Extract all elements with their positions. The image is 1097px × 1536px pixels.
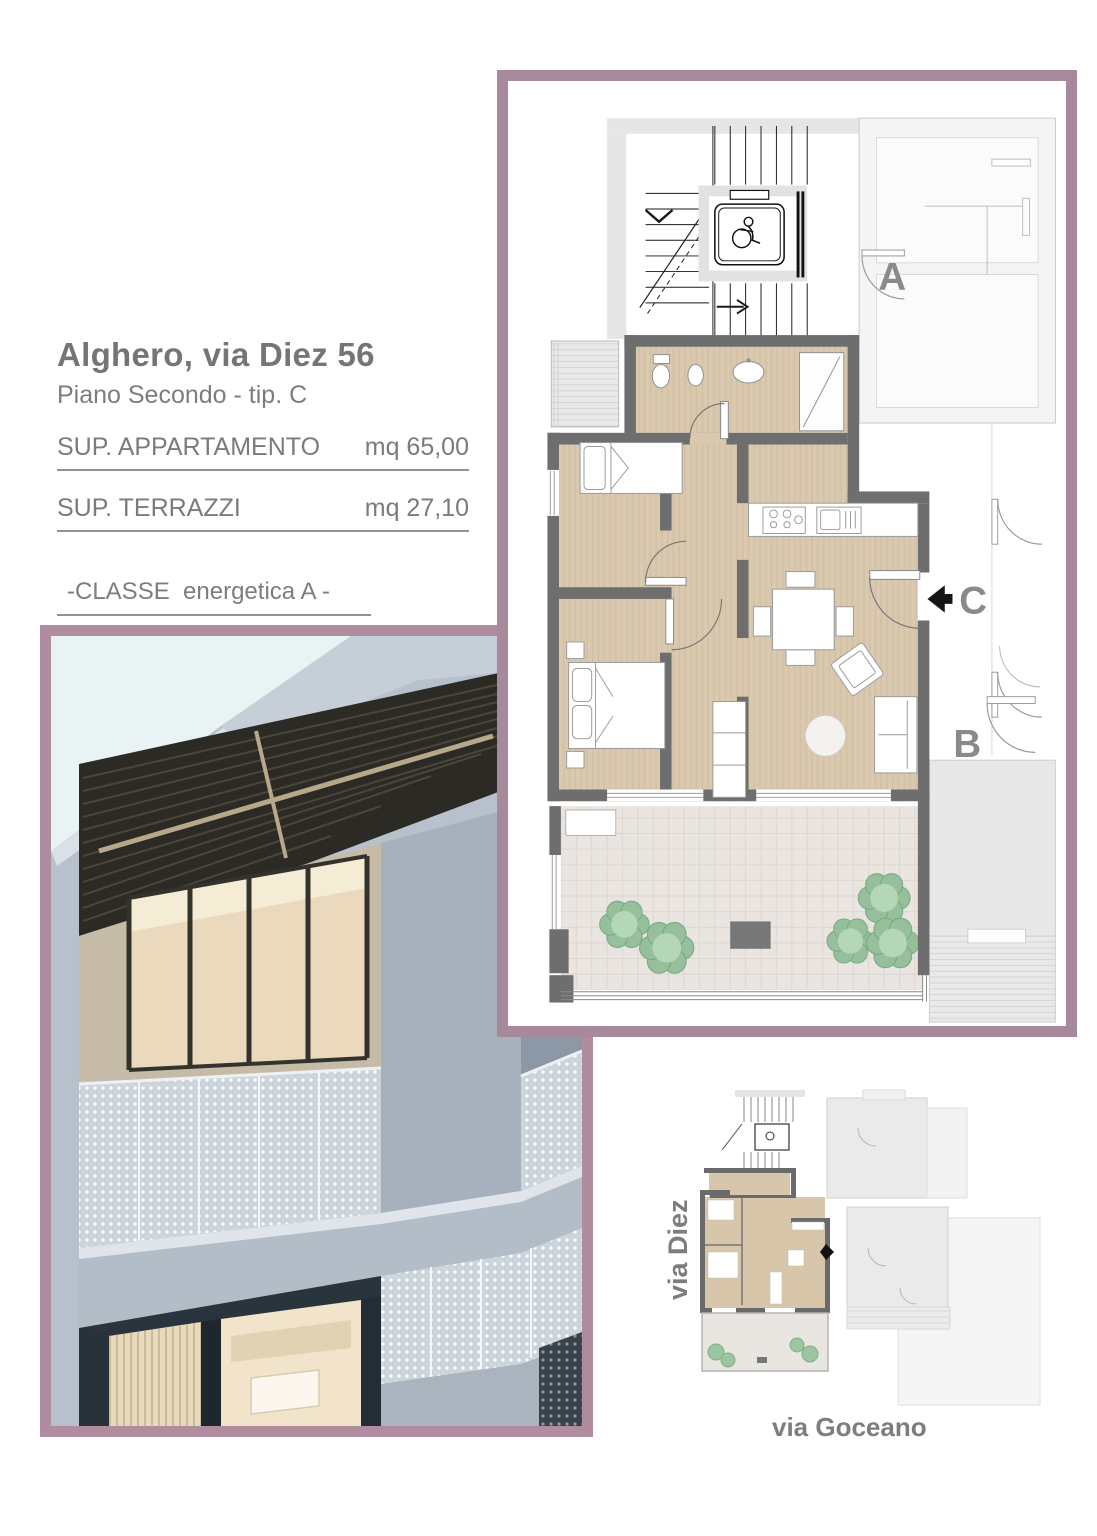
unit-label-a: A [878,256,906,299]
page-subtitle: Piano Secondo - tip. C [57,381,469,410]
terrace [549,806,926,1002]
site-plan [640,1080,1060,1440]
site-plan-drawing [640,1080,1060,1440]
elevator [698,186,807,282]
site-apartment [700,1168,834,1371]
bush [858,874,910,923]
bush [640,922,694,973]
unit-label-b: B [953,723,981,766]
area-apartment-label: SUP. APPARTAMENTO [57,433,320,462]
street-label-via-goceano: via Goceano [772,1412,927,1443]
brochure-page: Alghero, via Diez 56 Piano Secondo - tip… [0,0,1097,1536]
area-terrace-label: SUP. TERRAZZI [57,494,241,523]
energy-class-line: -CLASSE energetica A - [57,578,371,616]
neighbor-unit-b-room [929,760,1055,1022]
area-apartment-value: mq 65,00 [365,433,469,462]
street-label-via-diez: via Diez [663,1199,694,1300]
unit-label-c: C [959,579,987,622]
site-stairwell [722,1090,805,1168]
area-terrace-value: mq 27,10 [365,494,469,523]
bedroom1-furniture [580,443,682,494]
side-terrace [551,341,618,427]
main-floorplan-frame: A C B [497,70,1077,1037]
page-title: Alghero, via Diez 56 [57,336,469,374]
site-neighbors [827,1090,1040,1405]
main-floorplan: A C B [508,81,1066,1026]
area-row-terrace: SUP. TERRAZZI mq 27,10 [57,494,469,532]
area-row-apartment: SUP. APPARTAMENTO mq 65,00 [57,433,469,471]
bush [866,918,919,967]
info-block: Alghero, via Diez 56 Piano Secondo - tip… [57,336,469,616]
